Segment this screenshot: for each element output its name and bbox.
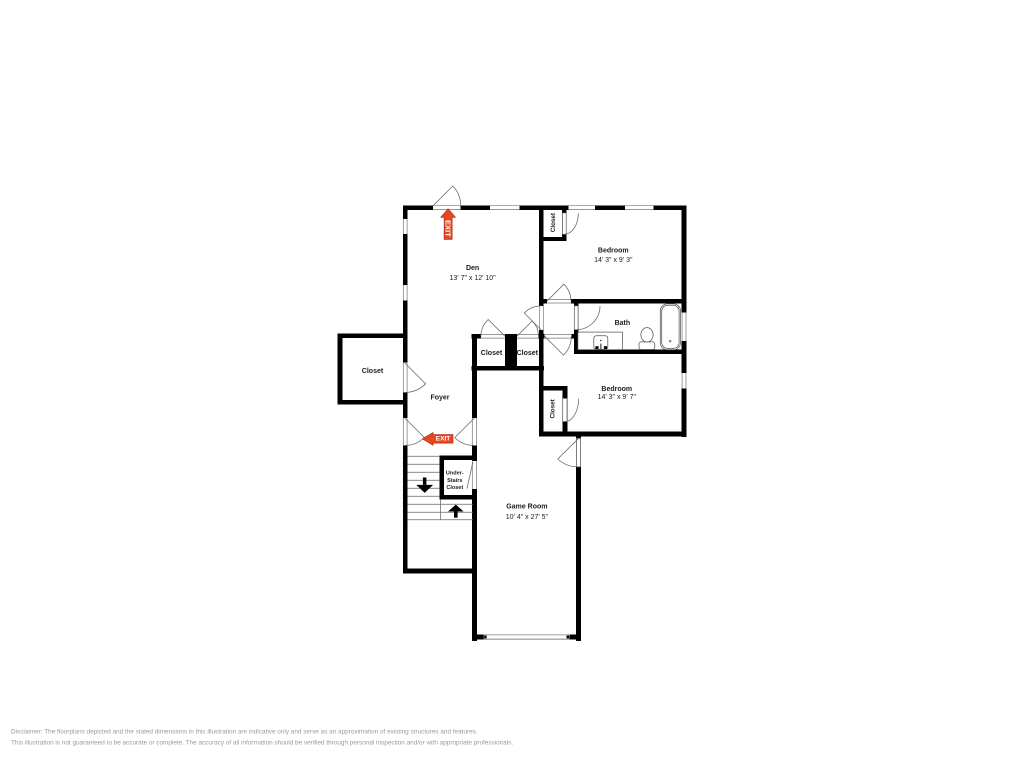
svg-text:EXIT: EXIT [444,220,453,237]
svg-text:Foyer: Foyer [430,395,449,402]
svg-text:This illustration is not guara: This illustration is not guaranteed to b… [11,740,513,747]
svg-text:Den: Den [466,265,479,272]
svg-text:Game Room: Game Room [506,504,547,511]
svg-text:Stairs: Stairs [447,478,462,484]
svg-text:Closet: Closet [550,398,557,418]
svg-text:Bedroom: Bedroom [598,248,629,255]
svg-text:14' 3" x 9' 3": 14' 3" x 9' 3" [594,257,633,264]
svg-text:Closet: Closet [550,212,557,232]
svg-text:Closet: Closet [517,350,539,357]
svg-text:14' 3" x 9' 7": 14' 3" x 9' 7" [598,394,637,401]
svg-text:Under-: Under- [446,471,464,477]
svg-text:Closet: Closet [481,350,503,357]
svg-text:10' 4" x 27' 5": 10' 4" x 27' 5" [506,514,549,521]
svg-text:13' 7" x 12' 10": 13' 7" x 12' 10" [450,275,497,282]
svg-text:Disclaimer: The floorplans dep: Disclaimer: The floorplans depicted and … [11,729,478,736]
svg-text:EXIT: EXIT [436,435,451,442]
svg-text:Bath: Bath [615,320,631,327]
svg-text:Bedroom: Bedroom [601,386,632,393]
svg-text:Closet: Closet [362,368,384,375]
svg-text:Closet: Closet [446,485,463,491]
